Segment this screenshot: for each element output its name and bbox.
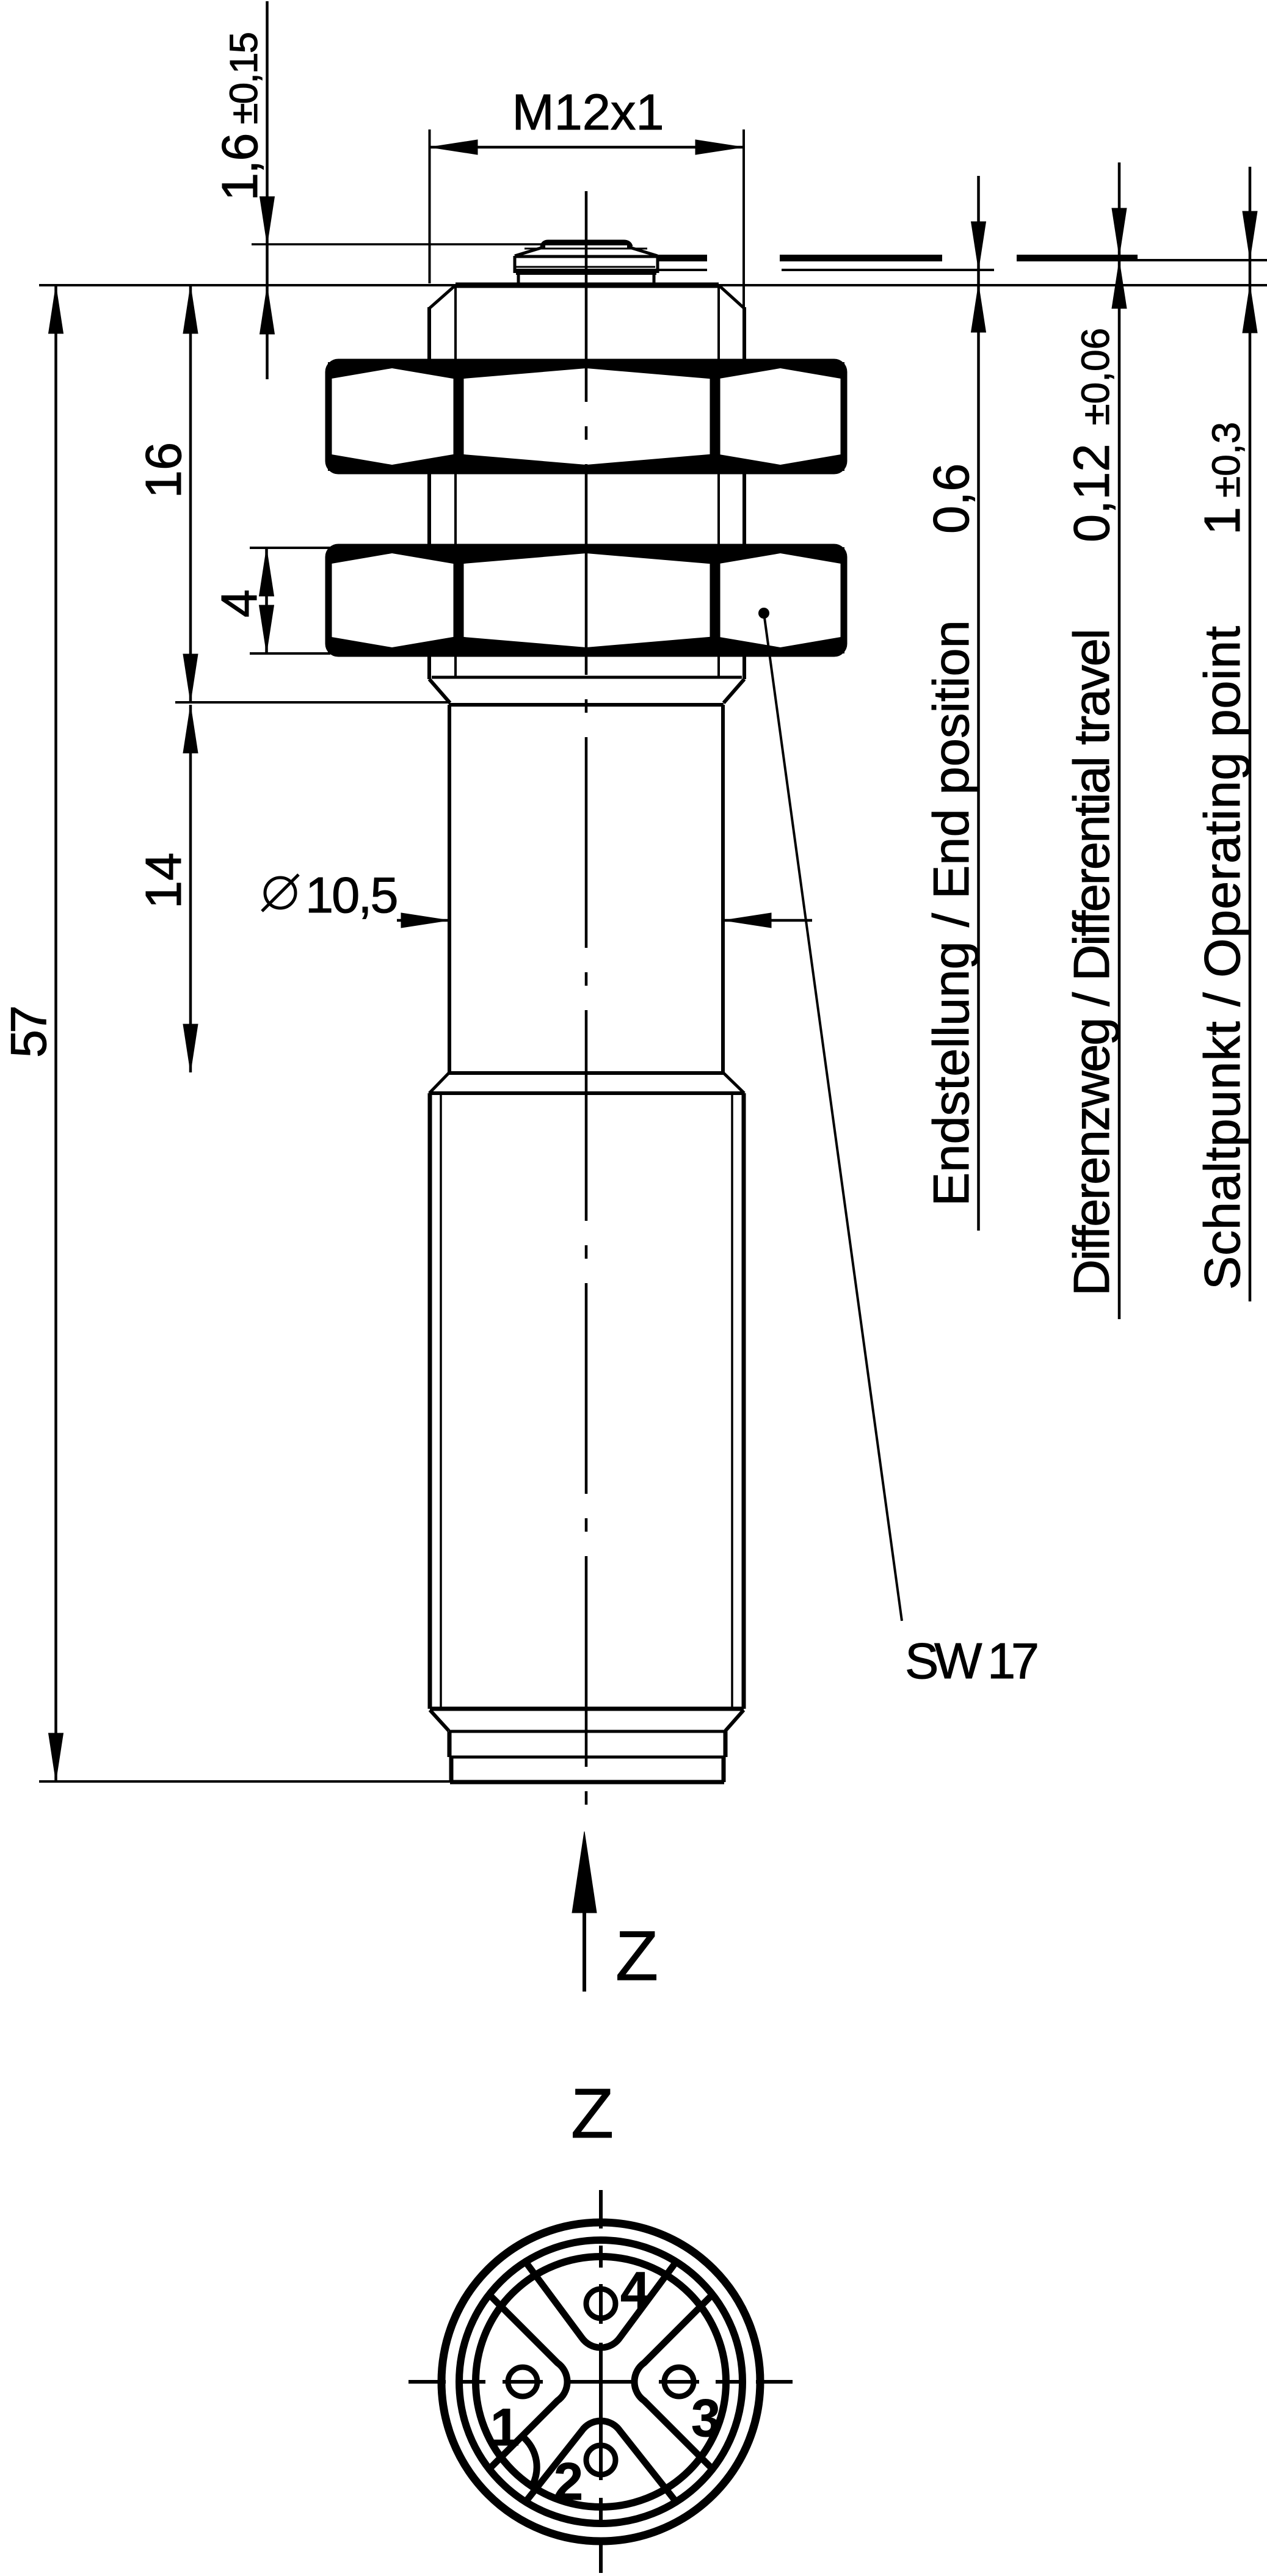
svg-text:1,6±0,15: 1,6±0,15 — [211, 33, 268, 201]
svg-text:3: 3 — [691, 2389, 721, 2448]
svg-text:0,6: 0,6 — [923, 464, 979, 534]
svg-text:57: 57 — [0, 1008, 57, 1058]
svg-text:Z: Z — [571, 2075, 614, 2153]
svg-text:SW 17: SW 17 — [905, 1632, 1039, 1689]
svg-text:16: 16 — [135, 442, 192, 498]
svg-text:4: 4 — [620, 2261, 650, 2320]
svg-text:Differenzweg / Differential tr: Differenzweg / Differential travel — [1063, 628, 1120, 1296]
svg-text:14: 14 — [135, 853, 192, 909]
svg-text:Endstellung / End position: Endstellung / End position — [923, 620, 979, 1206]
svg-text:Schaltpunkt / Operating point: Schaltpunkt / Operating point — [1194, 626, 1251, 1290]
svg-text:2: 2 — [554, 2453, 583, 2511]
svg-text:1±0,3: 1±0,3 — [1194, 422, 1251, 535]
svg-text:1: 1 — [490, 2398, 520, 2457]
svg-text:M12x1: M12x1 — [512, 84, 664, 140]
svg-text:4: 4 — [211, 589, 267, 617]
svg-text:Z: Z — [615, 1917, 658, 1995]
svg-text:10,5: 10,5 — [305, 867, 397, 923]
svg-text:0,12±0,06: 0,12±0,06 — [1063, 328, 1120, 542]
